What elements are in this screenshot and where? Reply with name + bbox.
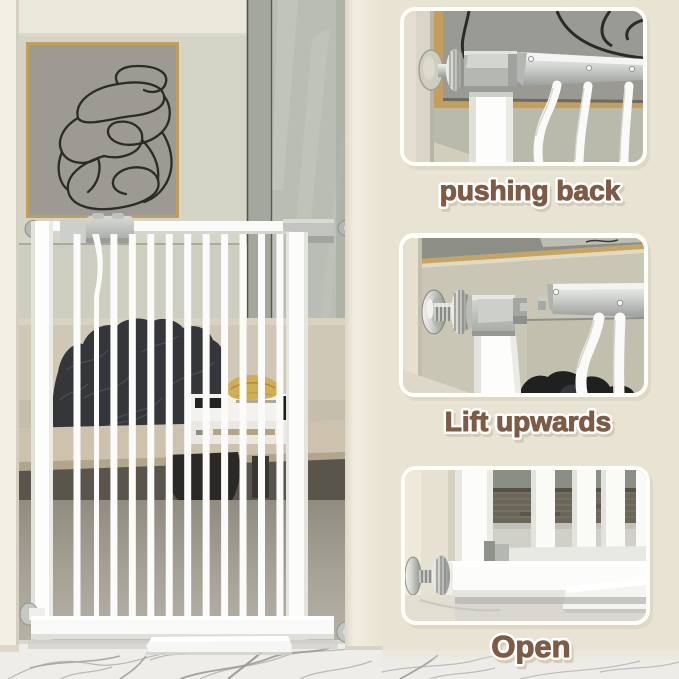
svg-text:Open: Open [491,629,570,664]
svg-text:Lift upwards: Lift upwards [445,406,611,437]
svg-text:pushing back: pushing back [440,175,621,206]
